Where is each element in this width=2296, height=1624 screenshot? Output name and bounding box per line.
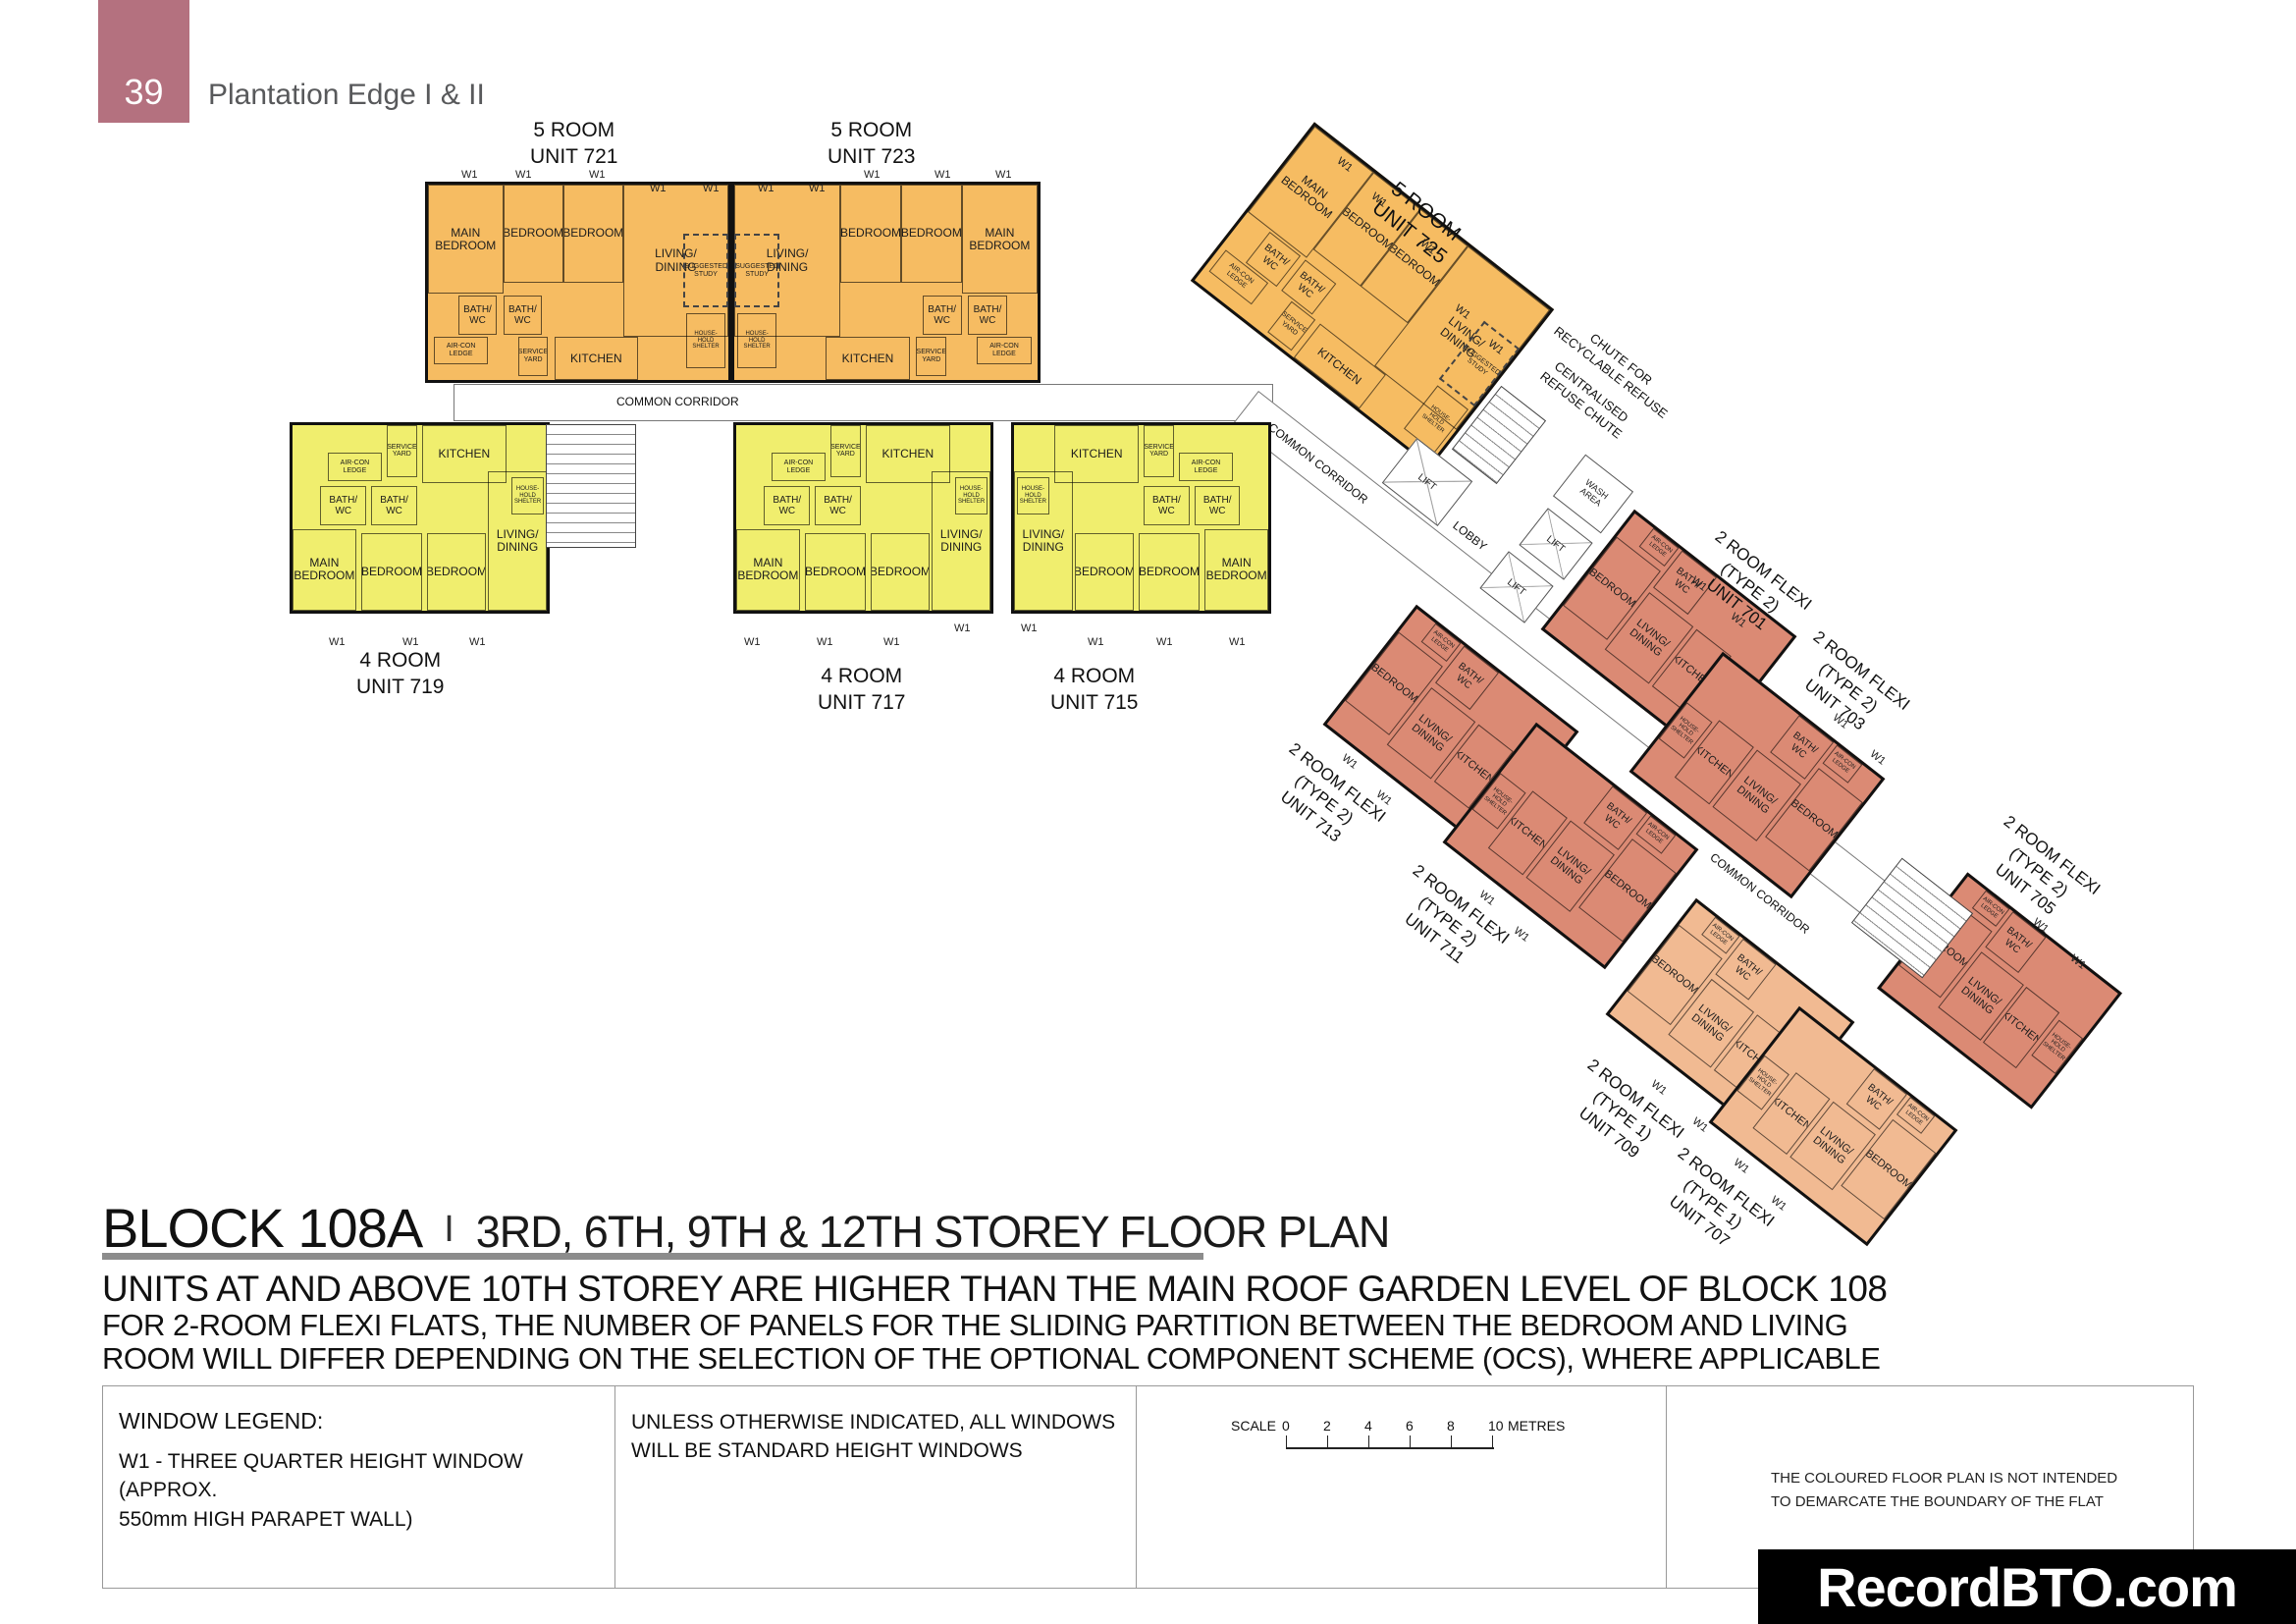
scale-tick-0: 0 (1282, 1418, 1290, 1434)
w1-window-label: W1 (864, 169, 881, 181)
room-house: HOUSE- HOLD SHELTER (737, 313, 776, 368)
room-service: SERVICE YARD (387, 425, 417, 477)
room-bath: BATH/ WC (815, 486, 861, 525)
note-line-1: UNITS AT AND ABOVE 10TH STOREY ARE HIGHE… (102, 1269, 1887, 1310)
floor-plan-page: 39 Plantation Edge I & II MAIN BEDROOMBE… (0, 0, 2296, 1624)
w1-window-label: W1 (402, 636, 419, 648)
room-air-con: AIR-CON LEDGE (328, 453, 381, 480)
page-number-tab: 39 (98, 0, 189, 123)
room-bath: BATH/ WC (320, 486, 366, 525)
room-kitchen: KITCHEN (555, 337, 639, 380)
ruler-tick (1451, 1435, 1452, 1447)
room-air-con: AIR-CON LEDGE (977, 337, 1032, 364)
block-name: BLOCK 108A (102, 1197, 422, 1259)
label-4-room-unit-719: 4 ROOM UNIT 719 (356, 648, 445, 701)
w1-window-label: W1 (1732, 1157, 1751, 1176)
project-title: Plantation Edge I & II (208, 79, 485, 112)
block-title-row: BLOCK 108AI3RD, 6TH, 9TH & 12TH STOREY F… (102, 1196, 1389, 1260)
room-bedroom: BEDROOM (1139, 533, 1200, 611)
room-bath: BATH/ WC (458, 296, 498, 335)
unit-715-plan: KITCHENSERVICE YARDAIR-CON LEDGEBATH/ WC… (1011, 422, 1271, 614)
w1-window-label: W1 (1340, 752, 1360, 772)
window-legend-item: W1 - THREE QUARTER HEIGHT WINDOW (APPROX… (119, 1447, 614, 1534)
ruler-tick (1410, 1435, 1411, 1447)
room-house: HOUSE- HOLD SHELTER (511, 477, 545, 514)
corridor (454, 384, 1273, 421)
room-house: HOUSE- HOLD SHELTER (955, 477, 988, 514)
note-line-3: ROOM WILL DIFFER DEPENDING ON THE SELECT… (102, 1341, 1880, 1377)
title-separator: I (444, 1209, 454, 1250)
room-kitchen: KITCHEN (826, 337, 911, 380)
w1-window-label: W1 (329, 636, 346, 648)
scale-tick-4: 4 (1364, 1418, 1372, 1434)
w1-window-label: W1 (995, 169, 1012, 181)
watermark-text: RecordBTO.com (1817, 1555, 2237, 1619)
room-service: SERVICE YARD (916, 337, 946, 376)
w1-window-label: W1 (469, 636, 486, 648)
label-common-corridor: COMMON CORRIDOR (1265, 420, 1371, 508)
room-main: MAIN BEDROOM (428, 185, 504, 294)
room-air-con: AIR-CON LEDGE (434, 337, 488, 364)
unit-723-plan: MAIN BEDROOMBEDROOMBEDROOMLIVING/ DINING… (731, 182, 1041, 383)
w1-window-label: W1 (1229, 636, 1246, 648)
label-4-room-unit-715: 4 ROOM UNIT 715 (1050, 664, 1139, 717)
ruler-tick (1286, 1435, 1287, 1447)
scale-label: SCALE (1231, 1418, 1276, 1434)
room-service: SERVICE YARD (518, 337, 549, 376)
room-air-con: AIR-CON LEDGE (1179, 453, 1232, 480)
recordbto-watermark: RecordBTO.com (1758, 1549, 2296, 1624)
storey-subtitle: 3RD, 6TH, 9TH & 12TH STOREY FLOOR PLAN (476, 1207, 1390, 1257)
w1-window-label: W1 (809, 183, 826, 194)
w1-window-label: W1 (703, 183, 720, 194)
room-house: HOUSE- HOLD SHELTER (686, 313, 725, 368)
w1-window-label: W1 (1649, 1078, 1669, 1098)
room-suggested: SUGGESTED STUDY (734, 234, 779, 308)
room-kitchen: KITCHEN (1294, 323, 1386, 408)
room-bedroom: BEDROOM (805, 533, 866, 611)
room-bath: BATH/ WC (1144, 486, 1190, 525)
ruler-tick (1327, 1435, 1328, 1447)
room-bedroom: BEDROOM (563, 185, 623, 283)
room-bedroom: BEDROOM (504, 185, 563, 283)
label-common-corridor: COMMON CORRIDOR (616, 395, 739, 409)
w1-window-label: W1 (515, 169, 532, 181)
label-5-room-unit-721: 5 ROOM UNIT 721 (530, 118, 618, 171)
windows-note: UNLESS OTHERWISE INDICATED, ALL WINDOWS … (631, 1408, 1115, 1466)
scale-tick-10: 10 (1488, 1418, 1504, 1434)
note-line-2: FOR 2-ROOM FLEXI FLATS, THE NUMBER OF PA… (102, 1308, 1847, 1343)
room-suggested: SUGGESTED STUDY (683, 234, 728, 308)
room-bath: BATH/ WC (968, 296, 1007, 335)
w1-window-label: W1 (1512, 925, 1531, 945)
room-bedroom: BEDROOM (427, 533, 486, 611)
w1-window-label: W1 (1868, 748, 1888, 768)
w1-window-label: W1 (883, 636, 900, 648)
room-bedroom: BEDROOM (871, 533, 930, 611)
room-bath: BATH/ WC (1195, 486, 1241, 525)
room-bedroom: BEDROOM (361, 533, 422, 611)
w1-window-label: W1 (1156, 636, 1173, 648)
unit-719-plan: KITCHENSERVICE YARDAIR-CON LEDGEBATH/ WC… (290, 422, 550, 614)
room-bath: BATH/ WC (504, 296, 543, 335)
w1-window-label: W1 (650, 183, 667, 194)
w1-window-label: W1 (934, 169, 951, 181)
room-bath: BATH/ WC (371, 486, 417, 525)
label-4-room-unit-717: 4 ROOM UNIT 717 (818, 664, 906, 717)
w1-window-label: W1 (589, 169, 606, 181)
disclaimer-text: THE COLOURED FLOOR PLAN IS NOT INTENDED … (1771, 1467, 2117, 1514)
window-legend-cell: WINDOW LEGEND: W1 - THREE QUARTER HEIGHT… (103, 1386, 614, 1588)
w1-window-label: W1 (954, 623, 971, 634)
ruler-tick (1492, 1435, 1493, 1447)
room-bath: BATH/ WC (923, 296, 962, 335)
scale-unit: METRES (1508, 1418, 1565, 1434)
scale-ruler (1286, 1435, 1494, 1449)
w1-window-label: W1 (461, 169, 478, 181)
room-bedroom: BEDROOM (1075, 533, 1134, 611)
room-service: SERVICE YARD (1144, 425, 1174, 477)
w1-window-label: W1 (758, 183, 774, 194)
room-main: MAIN BEDROOM (1204, 529, 1268, 611)
unit-721-plan: MAIN BEDROOMBEDROOMBEDROOMLIVING/ DINING… (425, 182, 731, 383)
room-bath: BATH/ WC (764, 486, 810, 525)
room-main: MAIN BEDROOM (293, 529, 356, 611)
windows-note-cell: UNLESS OTHERWISE INDICATED, ALL WINDOWS … (614, 1386, 1136, 1588)
label-5-room-unit-723: 5 ROOM UNIT 723 (828, 118, 916, 171)
w1-window-label: W1 (1021, 623, 1038, 634)
staircase (546, 424, 636, 548)
scale-tick-8: 8 (1447, 1418, 1455, 1434)
scale-cell: SCALE 0246810 METRES (1136, 1386, 1666, 1588)
w1-window-label: W1 (1088, 636, 1104, 648)
w1-window-label: W1 (1690, 1115, 1710, 1135)
room-bedroom: BEDROOM (901, 185, 962, 283)
room-main: MAIN BEDROOM (736, 529, 800, 611)
w1-window-label: W1 (817, 636, 833, 648)
room-service: SERVICE YARD (830, 425, 861, 477)
unit-717-plan: KITCHENSERVICE YARDAIR-CON LEDGEBATH/ WC… (733, 422, 993, 614)
title-underline (102, 1253, 1203, 1260)
room-bedroom: BEDROOM (840, 185, 901, 283)
label-2-room-flexi-type-1-unit-709: 2 ROOM FLEXI (TYPE 1) UNIT 709 (1557, 1055, 1688, 1177)
room-main: MAIN BEDROOM (962, 185, 1038, 294)
page-number: 39 (124, 72, 163, 113)
scale-tick-2: 2 (1323, 1418, 1331, 1434)
scale-tick-6: 6 (1406, 1418, 1414, 1434)
window-legend-title: WINDOW LEGEND: (119, 1408, 323, 1435)
room-house: HOUSE- HOLD SHELTER (1017, 477, 1050, 514)
w1-window-label: W1 (744, 636, 761, 648)
room-air-con: AIR-CON LEDGE (772, 453, 825, 480)
ruler-tick (1368, 1435, 1369, 1447)
